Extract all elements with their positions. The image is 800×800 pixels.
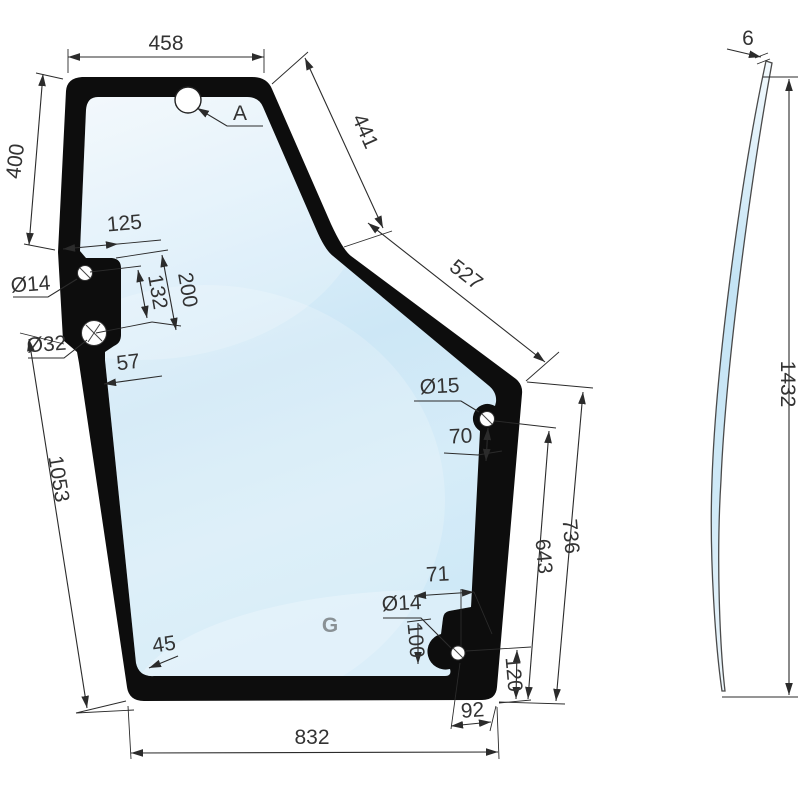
dim-label-92: 92 — [460, 698, 485, 723]
dim-label-125: 125 — [106, 211, 143, 237]
dim-label-70: 70 — [448, 424, 473, 448]
dim-label-57: 57 — [115, 350, 141, 376]
dim-label-736: 736 — [557, 518, 583, 555]
dim-label-458: 458 — [148, 32, 183, 55]
profile-shape — [711, 61, 772, 691]
detail-label-a: A — [233, 102, 247, 125]
technical-drawing-canvas: G 458 400 — [0, 0, 800, 800]
dim-label-71: 71 — [425, 562, 450, 586]
dim-label-d15: Ø15 — [419, 374, 460, 399]
dim-label-441: 441 — [347, 111, 382, 152]
dim-label-d14-left: Ø14 — [10, 272, 52, 298]
dim-label-45: 45 — [151, 632, 177, 658]
glass-panel-drawing: G 458 400 — [0, 0, 800, 800]
hole-d14-left — [78, 266, 93, 281]
dim-label-643: 643 — [530, 538, 556, 575]
hole-d15 — [480, 412, 495, 427]
side-view: 6 1432 — [711, 27, 799, 697]
dim-label-6: 6 — [742, 27, 754, 50]
dim-label-1053: 1053 — [43, 454, 73, 504]
dim-label-1432: 1432 — [776, 361, 799, 408]
watermark-g: G — [322, 614, 338, 637]
dim-label-120: 120 — [500, 656, 526, 693]
dim-label-d32: Ø32 — [26, 332, 67, 358]
dim-bottom-width: 832 — [128, 706, 499, 759]
dim-label-400: 400 — [2, 142, 29, 180]
dim-height: 1432 — [722, 77, 799, 697]
dim-label-832: 832 — [294, 726, 329, 749]
dim-top-width: 458 — [68, 32, 264, 73]
hole-a — [175, 87, 201, 113]
dim-label-100: 100 — [402, 622, 428, 659]
dim-upper-left-height: 400 — [2, 73, 63, 250]
dim-thickness: 6 — [727, 27, 770, 64]
hole-d14-bottom — [451, 646, 465, 660]
dim-label-d14-bottom: Ø14 — [381, 591, 422, 616]
